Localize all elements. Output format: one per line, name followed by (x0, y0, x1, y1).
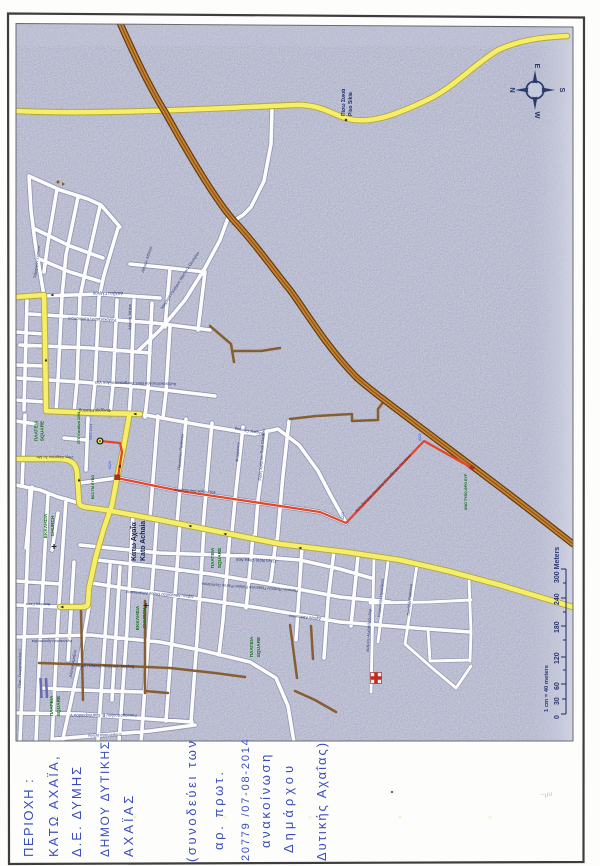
svg-text:Πλατ. Γεωργοπούλου Ι.: Πλατ. Γεωργοπούλου Ι. (18, 648, 22, 687)
svg-text:ΠΛΑΤΕΙΑ: ΠΛΑΤΕΙΑ (49, 695, 55, 716)
svg-text:ΠΛΑΤΕΙΑ: ΠΛΑΤΕΙΑ (34, 420, 40, 441)
svg-text:120: 120 (554, 652, 561, 664)
svg-text:SQUARE: SQUARE (40, 420, 46, 441)
svg-text:240: 240 (554, 593, 561, 605)
svg-text:Αθηνάς Athina: Αθηνάς Athina (127, 303, 132, 330)
svg-text:300 Meters: 300 Meters (554, 547, 561, 583)
svg-text:30: 30 (554, 697, 561, 705)
svg-text:ΔΗΜΟΥ ΔΥΤΙΚΗΣ: ΔΗΜΟΥ ΔΥΤΙΚΗΣ (98, 740, 112, 857)
svg-text:Δαλβου Γληνου: Δαλβου Γληνου (92, 291, 123, 296)
svg-text:ΑΝΩ ΤΥΒΟ-ΘΡΟ ΕΥΡ: ΑΝΩ ΤΥΒΟ-ΘΡΟ ΕΥΡ (464, 473, 468, 510)
svg-text:ΠΕΡΙΟΧΗ :: ΠΕΡΙΟΧΗ : (21, 778, 36, 857)
svg-text:N: N (508, 87, 517, 92)
svg-text:180: 180 (554, 621, 561, 633)
svg-text:ΕΚΚΛΗΣΙΑ: ΕΚΚΛΗΣΙΑ (135, 605, 141, 630)
svg-text:(συνοδεύει των: (συνοδεύει των (184, 738, 199, 862)
svg-text:6222: 6222 (341, 512, 345, 520)
svg-text:Αγιονικείου Αρναπαίδα: Αγιονικείου Αρναπαίδα (31, 639, 72, 644)
svg-text:6223: 6223 (108, 461, 112, 469)
svg-text:Δημάρχου: Δημάρχου (281, 762, 296, 853)
svg-text:ΠΛΑΤΕΙΑ: ΠΛΑΤΕΙΑ (210, 547, 216, 568)
svg-text:29ης Μαρτίου 3ο Μα: 29ης Μαρτίου 3ο Μα (36, 455, 73, 460)
svg-text:Δ.Ε. ΔΥΜΗΣ: Δ.Ε. ΔΥΜΗΣ (69, 765, 84, 857)
svg-text:60: 60 (554, 682, 561, 690)
svg-text:ΦιΑχρηε Fleming: ΦιΑχρηε Fleming (78, 408, 110, 413)
svg-text:S: S (558, 88, 567, 93)
svg-text:ΟΤΕ Κατάλνα 2294: ΟΤΕ Κατάλνα 2294 (77, 412, 81, 444)
svg-text:6222: 6222 (418, 433, 422, 441)
svg-text:W: W (533, 112, 542, 119)
svg-text:θεοτόκη Fees: θεοτόκη Fees (26, 602, 50, 607)
svg-text:ΑΧΑΪΑΣ: ΑΧΑΪΑΣ (121, 793, 136, 857)
svg-text:ΠΛΑΤΕΙΑ: ΠΛΑΤΕΙΑ (249, 636, 255, 657)
svg-text:Δυτικής Αχαΐας): Δυτικής Αχαΐας) (314, 741, 329, 861)
svg-text:SQUARE: SQUARE (217, 547, 223, 568)
svg-text:SQUARE: SQUARE (256, 636, 262, 657)
svg-text:αρ. πρωτ.: αρ. πρωτ. (211, 769, 226, 850)
svg-text:ΦΕΦ 2224: ΦΕΦ 2224 (89, 424, 93, 440)
svg-text:20779 /07-08-2014: 20779 /07-08-2014 (240, 737, 252, 861)
svg-text:ανακοίνωση: ανακοίνωση (258, 752, 273, 848)
svg-text:E: E (533, 64, 542, 69)
svg-text:CHURCH: CHURCH (142, 607, 148, 628)
svg-text:Κάτω Αχαΐα: Κάτω Αχαΐα (130, 521, 138, 561)
svg-text:1 cm = 40 meters: 1 cm = 40 meters (544, 665, 550, 712)
svg-text:Γουναροπούλου Β. Giannopoulou: Γουναροπούλου Β. Giannopoulou V. (69, 713, 136, 718)
svg-text:Πίσω Συκιά: Πίσω Συκιά (341, 88, 347, 116)
svg-text:Piso Sikia: Piso Sikia (348, 92, 354, 116)
svg-text:M13 ΤΜ ΕΥΒΟ: M13 ΤΜ ΕΥΒΟ (91, 475, 95, 500)
svg-text:SQUARE: SQUARE (56, 695, 62, 716)
svg-text:Βορείου Ηπείρου Vorejou Ipirou: Βορείου Ηπείρου Vorejou Ipirou (75, 663, 135, 669)
svg-text:0: 0 (554, 715, 561, 719)
svg-text:ΕΚΚΛΗΣΙΑ: ΕΚΚΛΗΣΙΑ (43, 513, 49, 538)
svg-text:ΚΑΤΩ ΑΧΑΪΑ,: ΚΑΤΩ ΑΧΑΪΑ, (46, 754, 61, 857)
svg-text:CHURCH: CHURCH (50, 515, 56, 536)
svg-text:Kato Achaia: Kato Achaia (140, 521, 147, 561)
